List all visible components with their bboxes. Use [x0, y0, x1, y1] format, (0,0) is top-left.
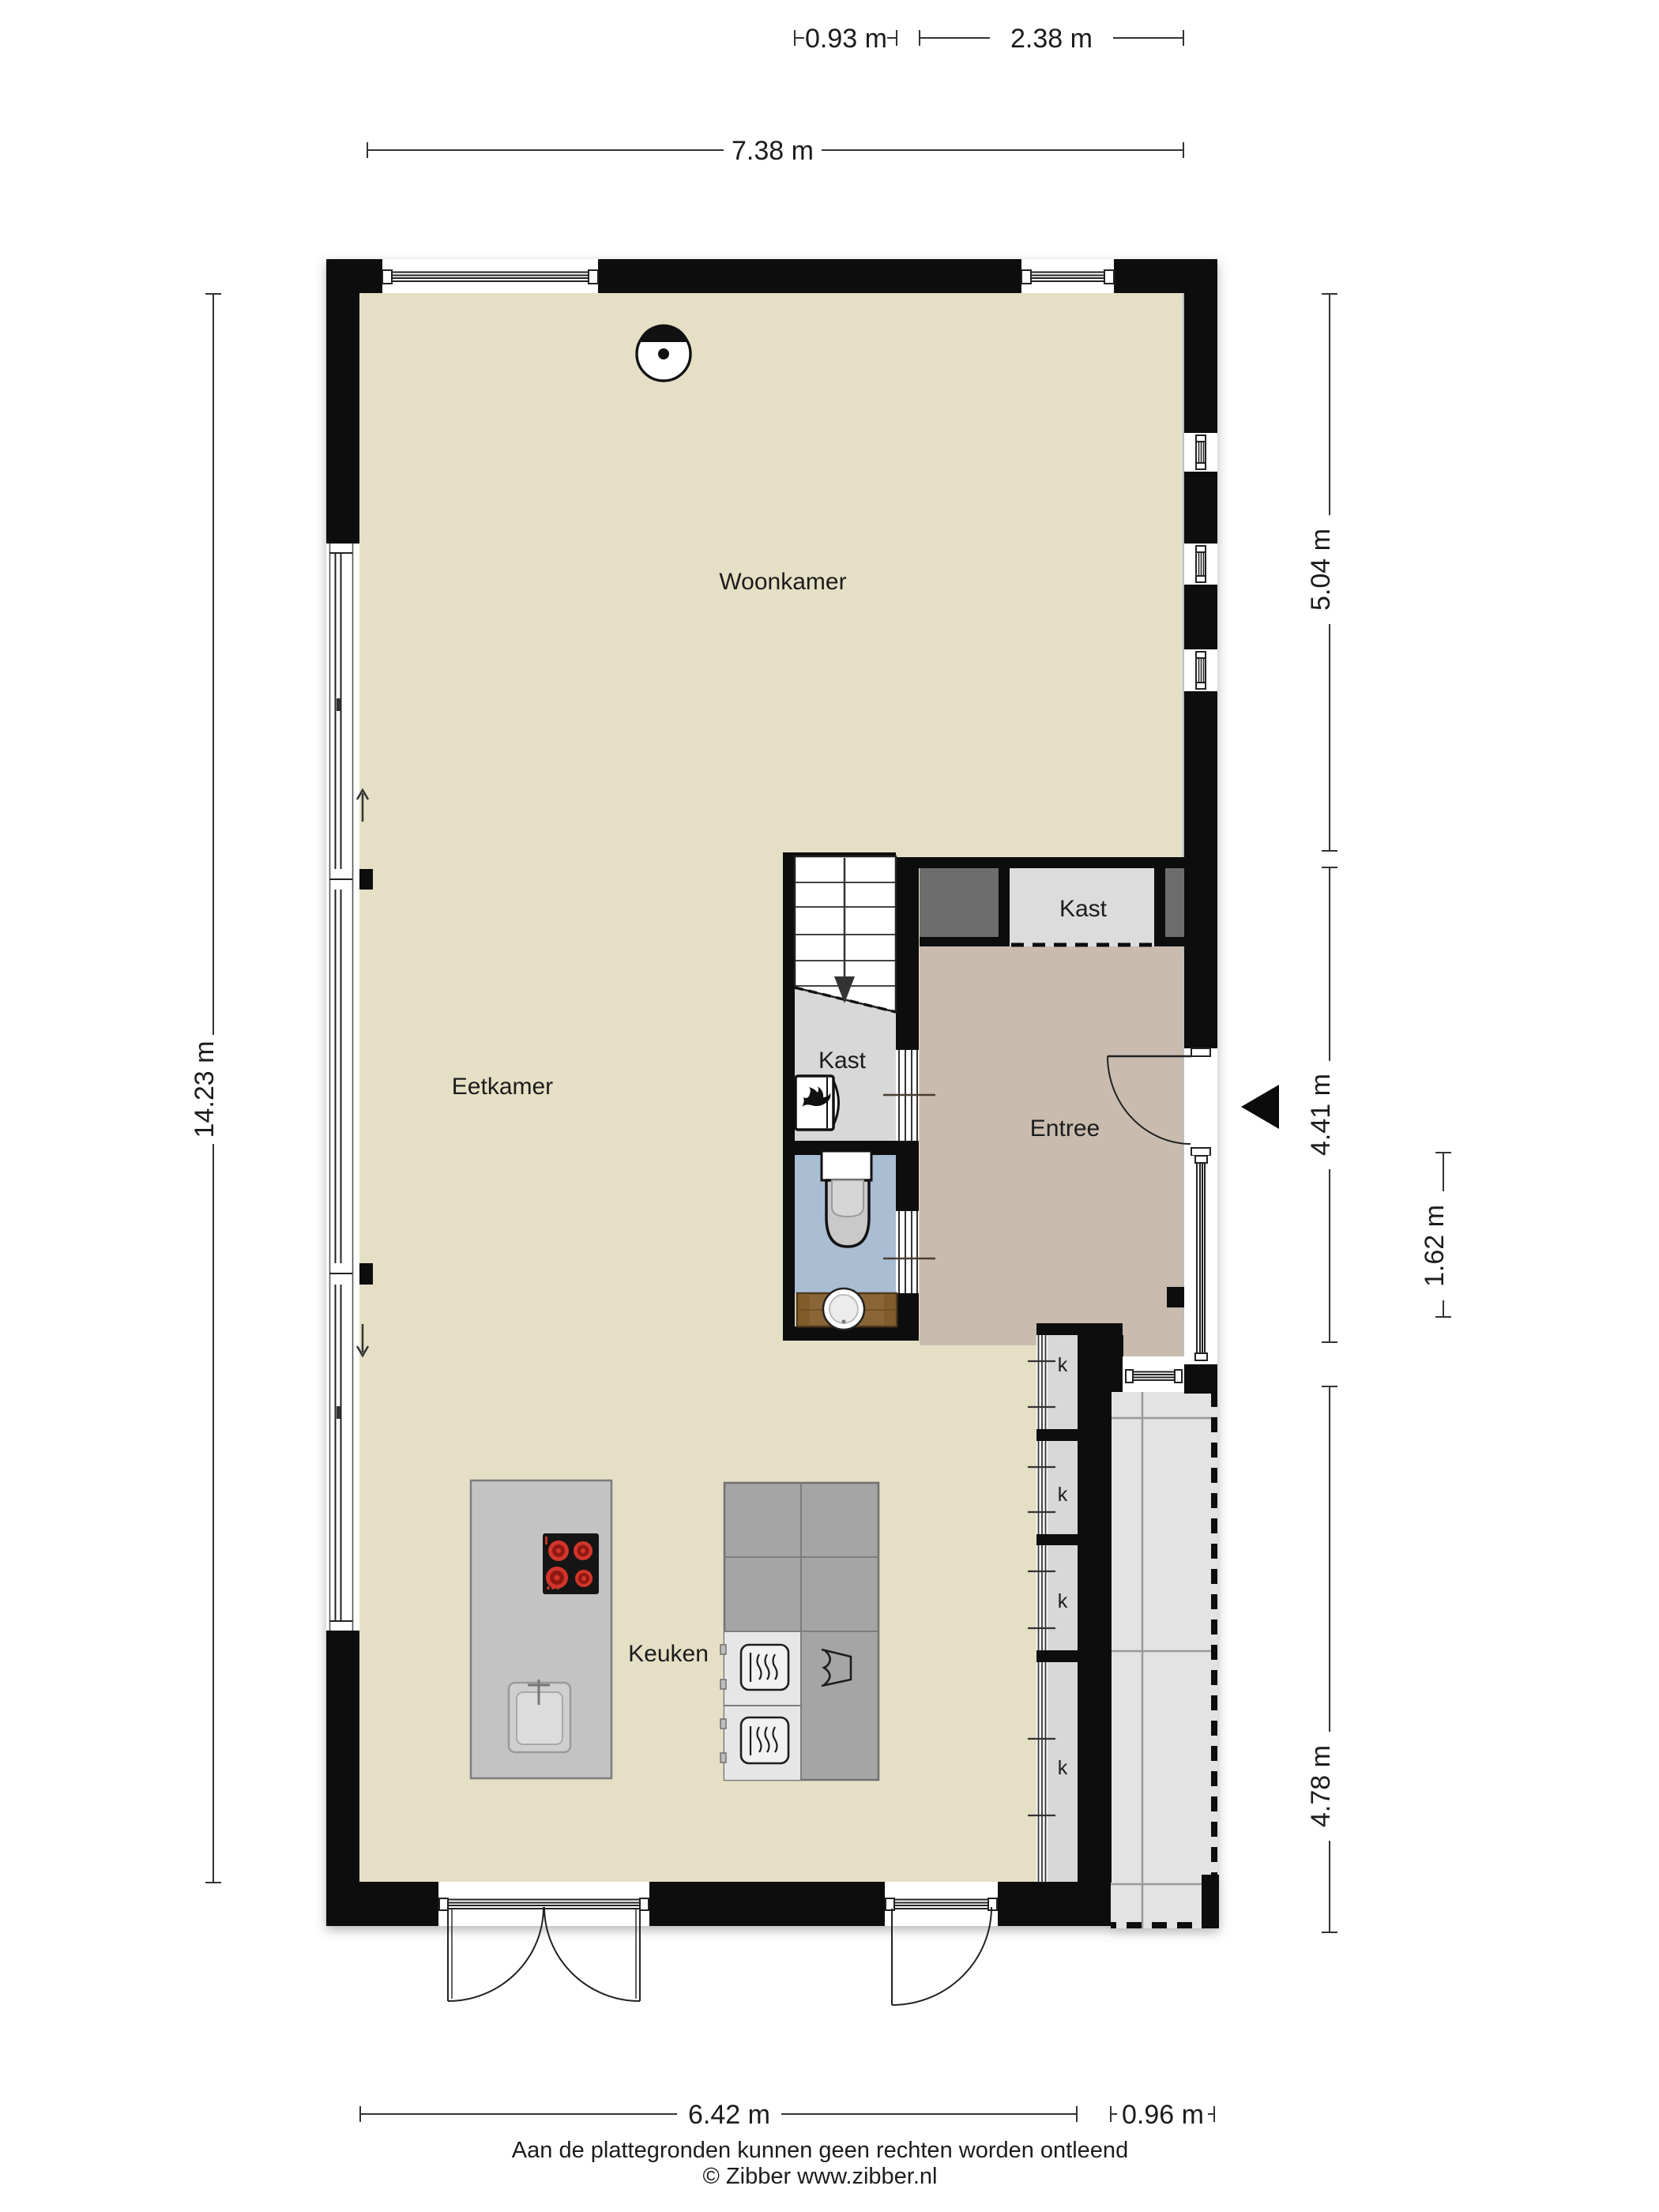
- svg-text:14.23 m: 14.23 m: [190, 1041, 220, 1138]
- svg-text:k: k: [1058, 1354, 1068, 1376]
- svg-text:4.78 m: 4.78 m: [1306, 1745, 1336, 1827]
- svg-text:Aan de plattegronden kunnen ge: Aan de plattegronden kunnen geen rechten…: [512, 2138, 1128, 2163]
- svg-text:1.62 m: 1.62 m: [1420, 1205, 1450, 1287]
- svg-text:2.38 m: 2.38 m: [1010, 24, 1093, 54]
- svg-text:4.41 m: 4.41 m: [1306, 1074, 1336, 1156]
- svg-text:5.04 m: 5.04 m: [1306, 529, 1336, 611]
- svg-text:7.38 m: 7.38 m: [732, 136, 814, 166]
- svg-text:Kast: Kast: [1059, 896, 1108, 922]
- svg-text:© Zibber www.zibber.nl: © Zibber www.zibber.nl: [703, 2164, 938, 2189]
- svg-text:k: k: [1058, 1590, 1068, 1612]
- svg-text:k: k: [1058, 1484, 1068, 1506]
- svg-text:k: k: [1058, 1757, 1068, 1779]
- svg-text:Woonkamer: Woonkamer: [719, 569, 846, 595]
- svg-text:0.96 m: 0.96 m: [1122, 2100, 1204, 2130]
- svg-text:Eetkamer: Eetkamer: [452, 1074, 553, 1100]
- svg-text:Entree: Entree: [1030, 1115, 1100, 1142]
- svg-text:0.93 m: 0.93 m: [805, 24, 887, 54]
- svg-text:Kast: Kast: [818, 1048, 867, 1074]
- svg-text:6.42 m: 6.42 m: [688, 2100, 770, 2130]
- svg-text:Keuken: Keuken: [628, 1641, 709, 1667]
